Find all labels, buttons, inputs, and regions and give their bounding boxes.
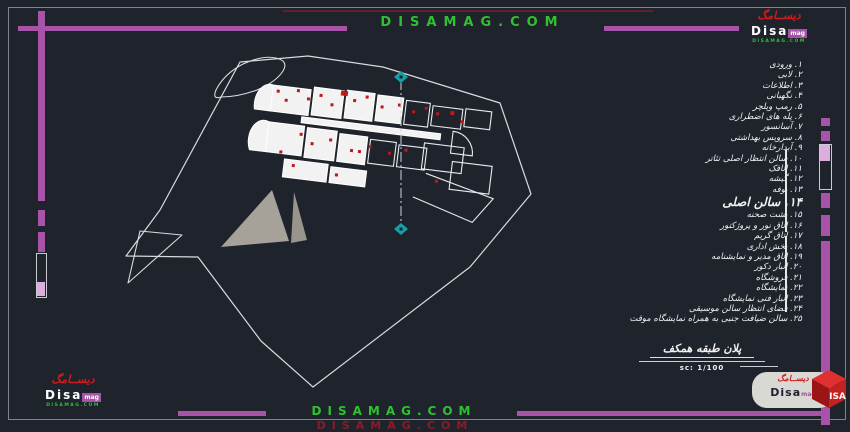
border-block-left-fill (37, 282, 45, 296)
legend-item: ۱۷. اتاق گریم (522, 231, 802, 241)
brand-cube-icon: ISA (810, 368, 848, 410)
legend-item: ۱۳. بوفه (522, 185, 802, 195)
legend-item: ۲۲. نمایشگاه (522, 283, 802, 293)
legend-item: ۴. نگهبانی (522, 91, 802, 101)
legend-item: ۶. پله های اضطراری (522, 112, 802, 122)
border-bar-top-right (604, 26, 739, 31)
legend-item: ۱۱. اتاقک (522, 164, 802, 174)
border-block-right-fill (820, 145, 830, 161)
ramp-shadow (221, 190, 307, 247)
watermark-bottom-shadow: DISAMAG.COM (295, 419, 495, 432)
border-bar-bottom-right (517, 411, 829, 416)
brand-name: Disa (770, 386, 801, 399)
legend-item: ۸. سرویس بهداشتی (522, 133, 802, 143)
legend-item: ۲۵. سالن ضیافت جنبی به همراه نمایشگاه مو… (522, 314, 802, 324)
brand-suffix: mag (82, 393, 101, 402)
legend-bracket-1 (785, 150, 787, 232)
legend-item: ۵. رمپ ویلچر (522, 102, 802, 112)
legend-item: ۱۲. گیشه (522, 174, 802, 184)
red-rule-top (283, 10, 653, 12)
seal-divider-line (740, 366, 778, 367)
legend-item: ۱۴. سالن اصلی (522, 195, 802, 210)
brand-domain: DISAMAG.COM (38, 404, 108, 409)
brand-name: Disa (45, 388, 82, 402)
brand-logo-top-right: ديســامگ Disamag DISAMAG.COM (744, 10, 814, 45)
brand-suffix: mag (788, 29, 807, 38)
legend-item: ۷. آسانسور (522, 122, 802, 132)
legend-item: ۱. ورودی (522, 60, 802, 70)
legend-item: ۱۶. اتاق نور و پروژکتور (522, 221, 802, 231)
legend-item: ۱۹. اتاق مدیر و نمایشنامه (522, 252, 802, 262)
brand-persian: ديســامگ (744, 10, 814, 21)
border-bar-top-left (18, 26, 347, 31)
brand-cube-text: ISA (829, 392, 846, 402)
room-legend: ۱. ورودی۲. لابی۳. اطلاعات۴. نگهبانی۵. رم… (522, 60, 802, 325)
section-marker-bottom (394, 223, 408, 235)
legend-item: ۹. آبدارخانه (522, 143, 802, 153)
legend-item: ۲۴. فضای انتظار سالن موسیقی (522, 304, 802, 314)
watermark-bottom: DISAMAG.COM (278, 404, 510, 418)
brand-name: Disa (751, 24, 788, 38)
watermark-top: DISAMAG.COM (345, 15, 600, 30)
title-underline-2 (639, 361, 765, 362)
border-dash-right-2 (821, 131, 830, 141)
legend-item: ۲۰. انبار دکور (522, 262, 802, 272)
cad-sheet: { "watermarks": { "top": "DISAMAG.COM", … (0, 0, 850, 425)
legend-item: ۱۵. پشت صحنه (522, 210, 802, 220)
border-dash-left-1 (38, 210, 45, 226)
legend-item: ۲۱. فروشگاه (522, 273, 802, 283)
brand-logo-bottom-left: ديســامگ Disamag DISAMAG.COM (38, 374, 108, 409)
section-marker-top (394, 71, 408, 83)
building-plan (242, 79, 505, 225)
legend-item: ۱۰. سالن انتظار اصلی تئاتر (522, 154, 802, 164)
brand-domain: DISAMAG.COM (744, 40, 814, 45)
title-underline-1 (650, 357, 754, 358)
drawing-title: پلان طبقه همکف (638, 342, 766, 355)
border-dash-right-1 (821, 118, 830, 126)
brand-persian: ديســامگ (38, 374, 108, 385)
legend-item: ۳. اطلاعات (522, 81, 802, 91)
legend-item: ۲۳. انبار فنی نمایشگاه (522, 294, 802, 304)
border-bar-left (38, 11, 45, 201)
legend-item: ۲. لابی (522, 70, 802, 80)
title-block: پلان طبقه همکف sc: 1/100 (638, 342, 766, 372)
border-bar-bottom-left (178, 411, 266, 416)
legend-item: ۱۸. بخش اداری (522, 242, 802, 252)
border-dash-left-2 (38, 232, 45, 252)
border-dash-right-4 (821, 215, 830, 236)
legend-bracket-2 (785, 236, 787, 312)
border-dash-right-3 (821, 193, 830, 208)
